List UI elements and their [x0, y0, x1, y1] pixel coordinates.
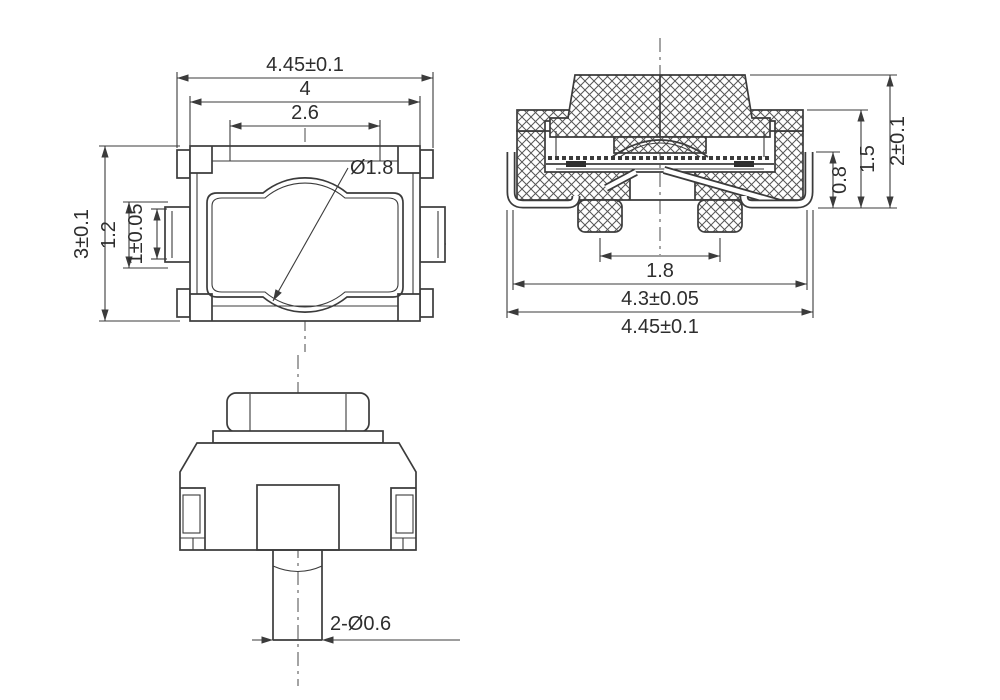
top-view-ear-top-left — [177, 150, 190, 178]
contact-point-left — [566, 161, 586, 167]
top-view-ear-bottom-left — [177, 289, 190, 317]
dim-section-base-width: 4.3±0.05 — [621, 288, 699, 310]
front-collar — [213, 431, 383, 443]
contact-point-right — [734, 161, 754, 167]
dim-section-terminal-height: 0.8 — [829, 166, 851, 194]
top-view-ear-top-right — [420, 150, 433, 178]
dim-top-overall-depth: 3±0.1 — [71, 209, 93, 259]
front-view-dimensions: 2-Ø0.6 — [252, 613, 460, 640]
front-view: 2-Ø0.6 — [180, 355, 460, 686]
dim-top-tab-outer: 1.2 — [98, 221, 120, 249]
section-view: 0.8 1.5 2±0.1 1.8 4.3±0.05 4.45±0.1 — [507, 38, 909, 338]
dim-front-locating-pegs: 2-Ø0.6 — [330, 613, 391, 635]
dim-section-boss-pitch: 1.8 — [646, 260, 674, 282]
dim-top-tab-inner: 1±0.05 — [125, 203, 147, 264]
top-view-tab-left — [165, 207, 190, 262]
dim-top-cover-width: 2.6 — [291, 102, 319, 124]
top-view-tab-right — [420, 207, 445, 262]
technical-drawing-page: Ø1.8 4.45±0.1 4 2.6 3±0.1 1.2 — [0, 0, 1000, 700]
dim-top-overall-width: 4.45±0.1 — [266, 54, 344, 76]
front-peg-arc — [273, 566, 322, 572]
engineering-drawing: Ø1.8 4.45±0.1 4 2.6 3±0.1 1.2 — [0, 0, 1000, 700]
dim-top-body-width: 4 — [299, 78, 310, 100]
top-view: Ø1.8 4.45±0.1 4 2.6 3±0.1 1.2 — [71, 54, 446, 352]
dim-top-dome-diameter: Ø1.8 — [350, 157, 393, 179]
dim-section-overall-height: 2±0.1 — [887, 116, 909, 166]
dim-section-overall-width: 4.45±0.1 — [621, 316, 699, 338]
front-body-outline — [180, 443, 416, 550]
locating-boss-right — [698, 200, 742, 232]
front-button-cap — [227, 393, 369, 432]
top-view-ear-bottom-right — [420, 289, 433, 317]
dim-section-housing-height: 1.5 — [857, 145, 879, 173]
locating-boss-left — [578, 200, 622, 232]
